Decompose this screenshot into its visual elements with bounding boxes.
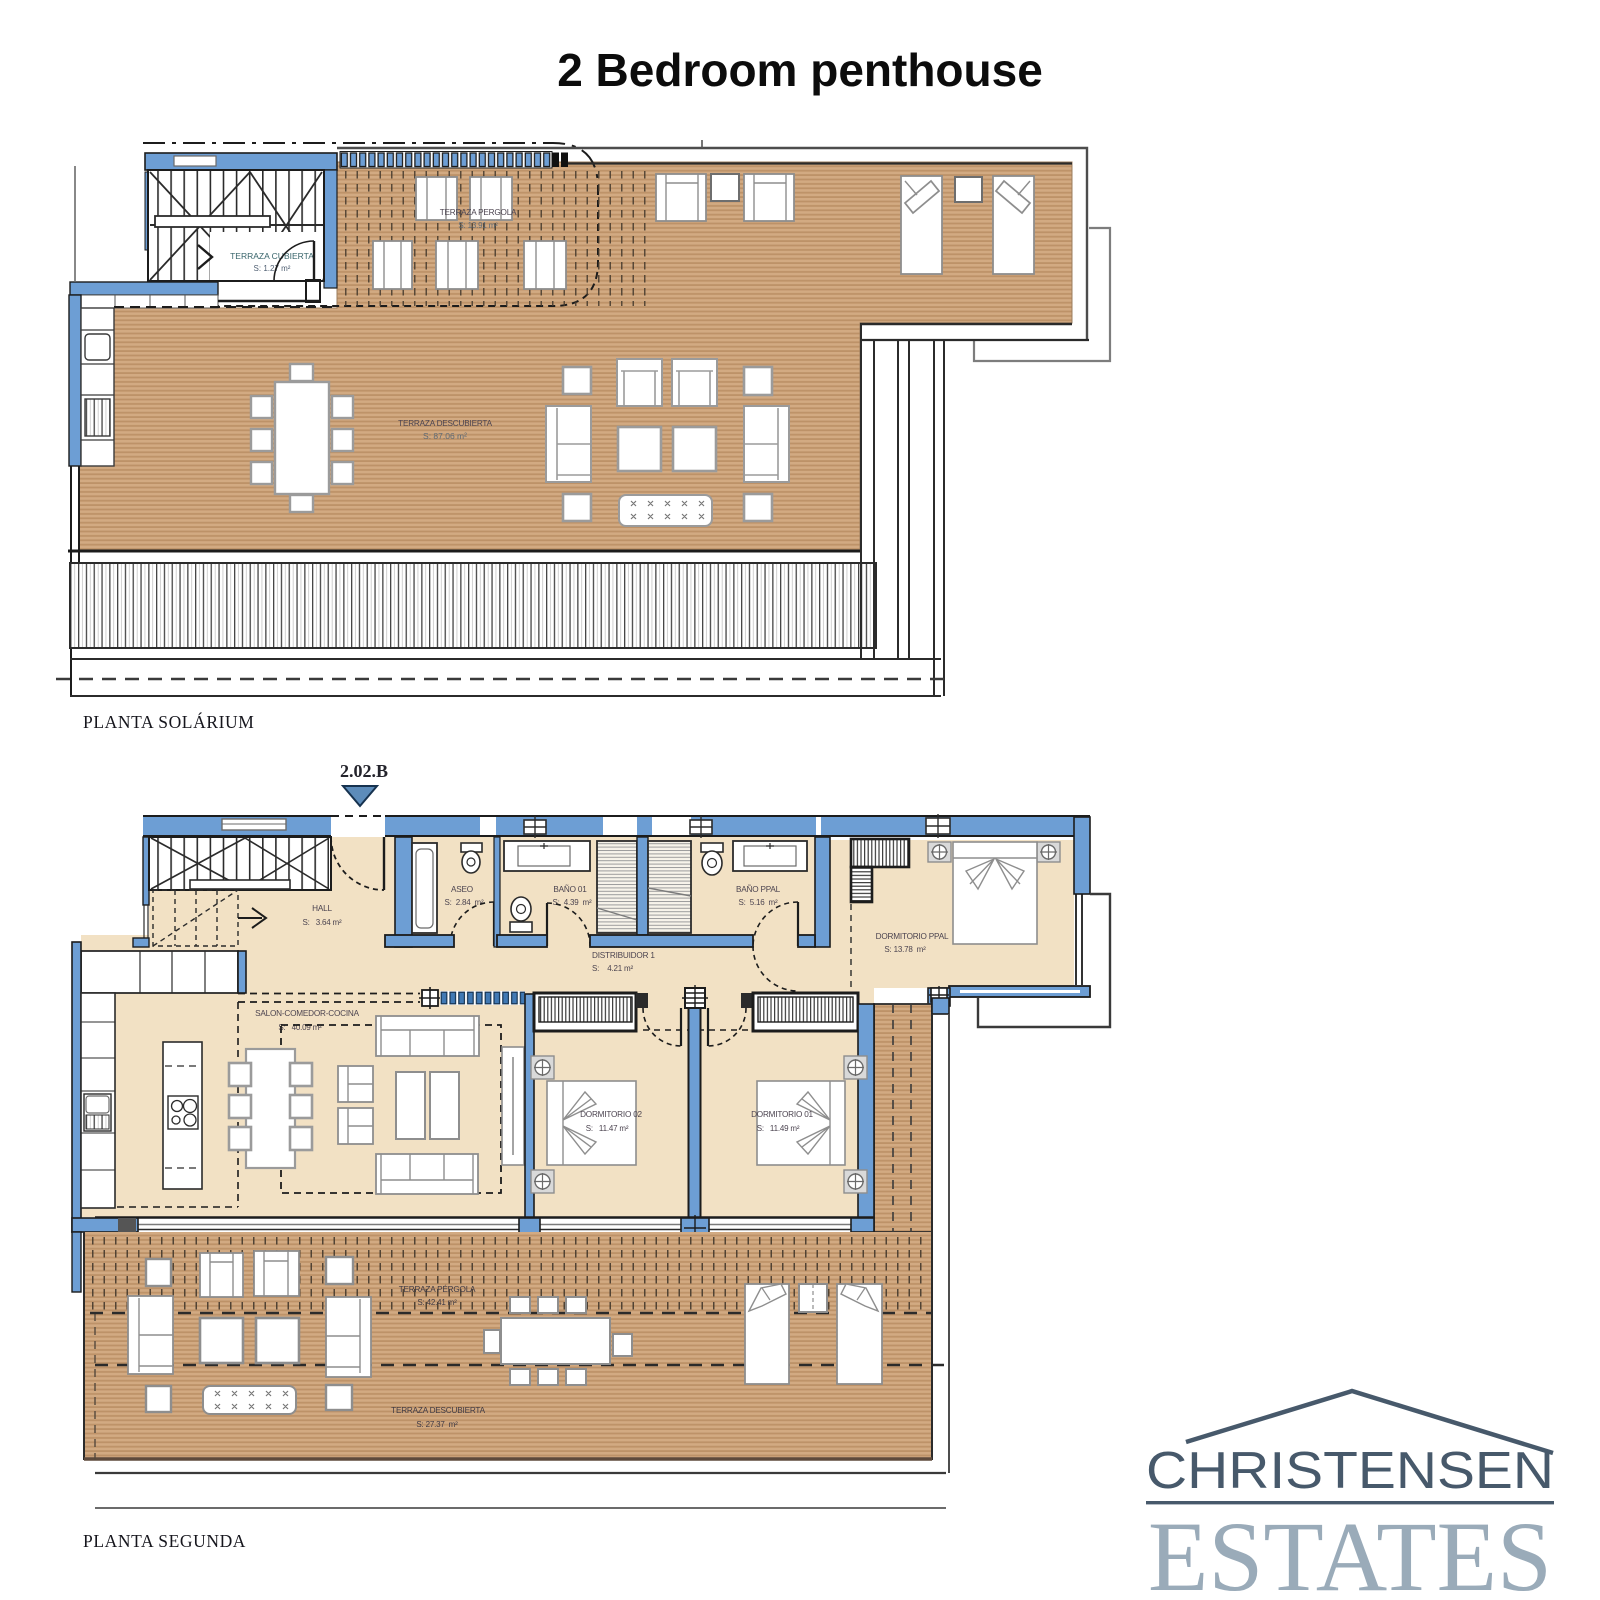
svg-text:2 Bedroom penthouse: 2 Bedroom penthouse	[557, 44, 1043, 96]
svg-text:S: 11.49 m²: S: 11.49 m²	[757, 1124, 800, 1133]
svg-text:TERRAZA DESCUBIERTA: TERRAZA DESCUBIERTA	[391, 1406, 485, 1415]
svg-text:S: 27.37 m²: S: 27.37 m²	[416, 1420, 458, 1429]
svg-text:S: 13.91 m²: S: 13.91 m²	[458, 221, 498, 230]
svg-text:S: 13.78 m²: S: 13.78 m²	[884, 945, 926, 954]
svg-text:DISTRIBUIDOR 1: DISTRIBUIDOR 1	[592, 951, 655, 960]
svg-text:SALON-COMEDOR-COCINA: SALON-COMEDOR-COCINA	[255, 1009, 360, 1018]
svg-text:HALL: HALL	[312, 904, 332, 913]
svg-text:TERRAZA CUBIERTA: TERRAZA CUBIERTA	[230, 251, 314, 261]
svg-text:PLANTA SOLÁRIUM: PLANTA SOLÁRIUM	[83, 712, 254, 732]
svg-text:S: 1.27 m²: S: 1.27 m²	[254, 264, 291, 273]
svg-text:BAÑO 01: BAÑO 01	[553, 884, 587, 894]
svg-text:DORMITORIO PPAL: DORMITORIO PPAL	[876, 932, 949, 941]
svg-text:S: 11.47 m²: S: 11.47 m²	[586, 1124, 629, 1133]
svg-text:2.02.B: 2.02.B	[340, 761, 388, 781]
svg-text:PLANTA SEGUNDA: PLANTA SEGUNDA	[83, 1531, 246, 1551]
svg-text:DORMITORIO 02: DORMITORIO 02	[580, 1110, 642, 1119]
svg-text:BAÑO PPAL: BAÑO PPAL	[736, 884, 781, 894]
svg-text:CHRISTENSEN: CHRISTENSEN	[1146, 1442, 1554, 1500]
svg-text:S: 42.41 m²: S: 42.41 m²	[417, 1298, 457, 1307]
svg-text:TERRAZA PÉRGOLA: TERRAZA PÉRGOLA	[399, 1284, 476, 1294]
svg-text:S: 87.06 m²: S: 87.06 m²	[423, 431, 467, 441]
svg-text:S: 3.64 m²: S: 3.64 m²	[303, 918, 342, 927]
svg-text:TERRAZA PERGOLA: TERRAZA PERGOLA	[440, 208, 517, 217]
svg-text:S: 5.16 m²: S: 5.16 m²	[739, 898, 778, 907]
svg-text:S: 2.84 m²: S: 2.84 m²	[445, 898, 484, 907]
svg-text:S: 4.39 m²: S: 4.39 m²	[553, 898, 592, 907]
svg-text:DORMITORIO 01: DORMITORIO 01	[751, 1110, 813, 1119]
svg-text:TERRAZA DESCUBIERTA: TERRAZA DESCUBIERTA	[398, 419, 492, 428]
svg-text:S: 4.21 m²: S: 4.21 m²	[592, 964, 634, 973]
svg-text:ESTATES: ESTATES	[1148, 1501, 1552, 1600]
svg-text:ASEO: ASEO	[451, 885, 473, 894]
